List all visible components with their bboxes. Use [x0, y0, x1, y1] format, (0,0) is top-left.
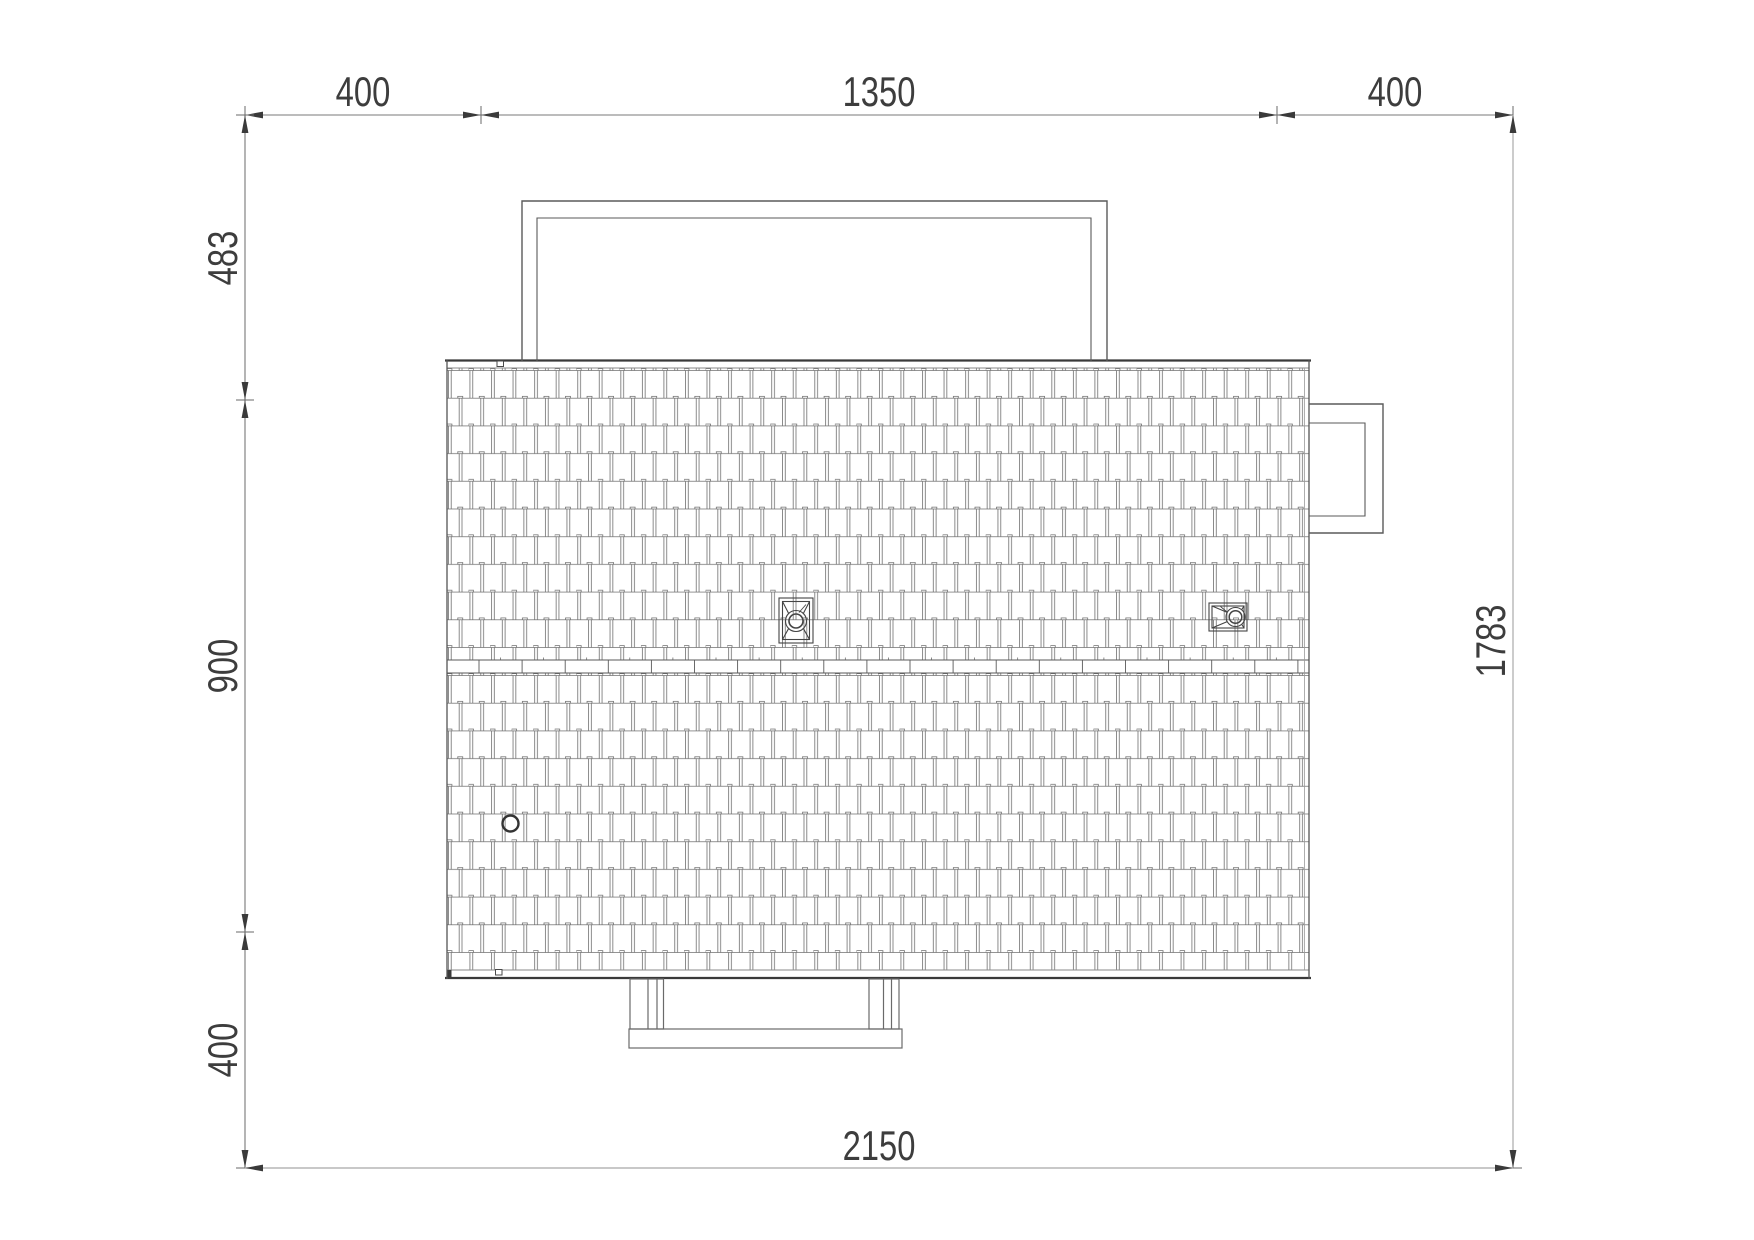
roof-tiles-upper [447, 368, 1309, 660]
dimension-bottom: 2150 [245, 1122, 1513, 1171]
dim-label-left-top: 483 [199, 231, 246, 286]
eave-fixing-bottom [496, 970, 503, 976]
dim-label-top-middle: 1350 [843, 68, 916, 115]
dim-label-bottom-overall: 2150 [843, 1122, 916, 1169]
dim-label-left-bottom: 400 [199, 1023, 246, 1078]
dim-label-top-left: 400 [336, 68, 391, 115]
bottom-steps [629, 979, 902, 1048]
roof-top-eave [445, 361, 1311, 369]
roof-plan-drawing: 400 1350 400 483 900 400 [0, 0, 1754, 1240]
dim-label-left-middle: 900 [199, 639, 246, 694]
roof-plan-canvas: 400 1350 400 483 900 400 [0, 0, 1754, 1240]
dim-label-right-overall: 1783 [1467, 605, 1514, 678]
ridge-band [447, 658, 1309, 674]
roof-bottom-eave [445, 970, 1311, 980]
step-slab [629, 1029, 902, 1048]
eave-fixing-top [497, 361, 504, 367]
roof-tiles-lower [447, 673, 1309, 970]
dimension-left: 483 900 400 [199, 115, 254, 1168]
eave-end-cap [447, 970, 452, 979]
roof-outline [445, 360, 1311, 979]
dimension-top: 400 1350 400 [245, 68, 1513, 360]
dim-label-top-right: 400 [1368, 68, 1423, 115]
step-post-left [630, 979, 664, 1029]
right-chimney [1309, 404, 1383, 533]
dimension-right: 1783 [1467, 115, 1522, 1168]
top-terrace-outline [522, 201, 1107, 361]
